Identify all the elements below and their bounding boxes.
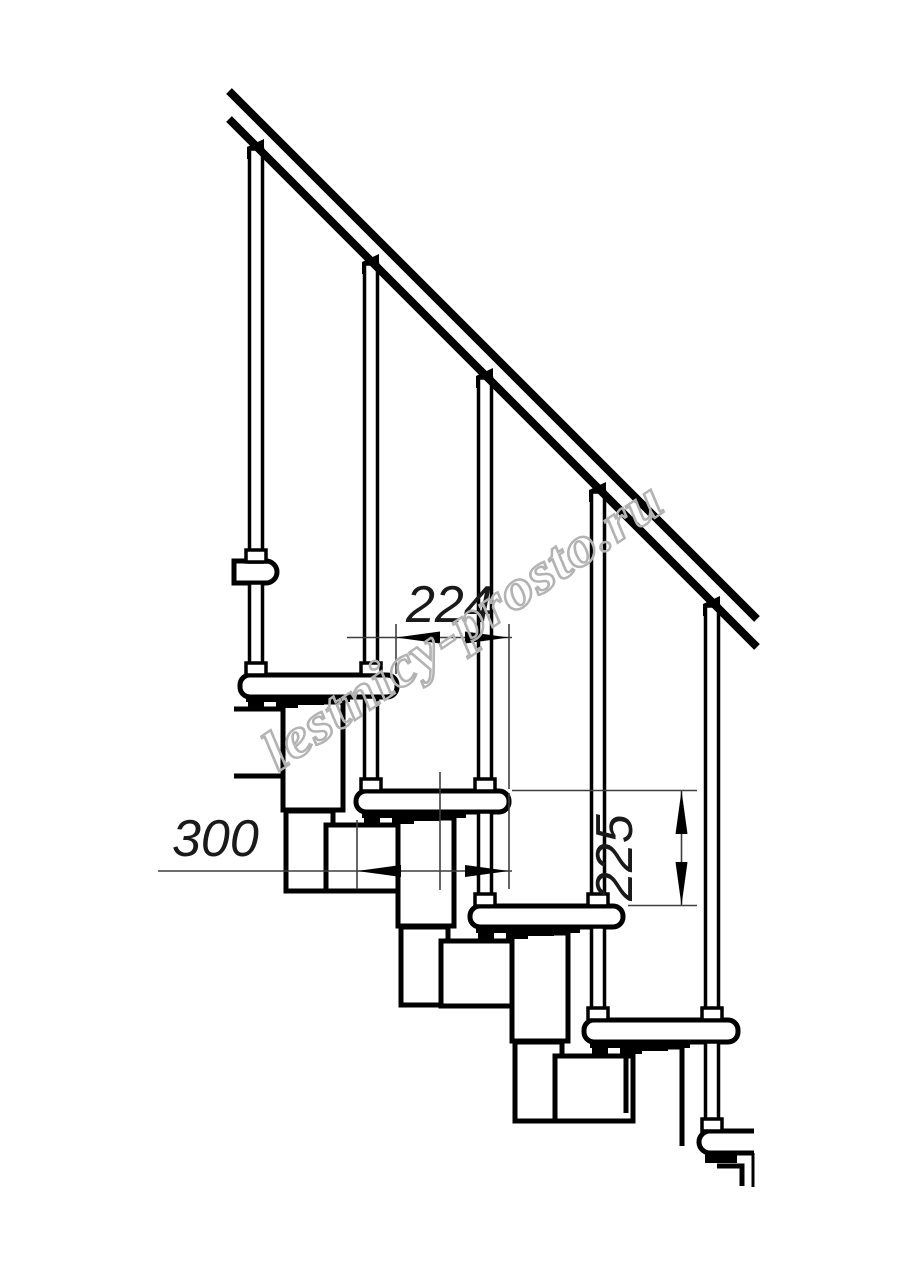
baluster-collar xyxy=(475,894,495,906)
cut-outline xyxy=(717,1166,742,1186)
module-box xyxy=(441,941,518,1006)
tread-bracket xyxy=(506,930,528,939)
tread-5-partial xyxy=(699,1131,754,1153)
tread-bracket xyxy=(478,926,494,939)
baluster-segment xyxy=(365,264,378,675)
staircase-technical-drawing: 224 300 225 lestnicy-prosto.ru xyxy=(0,0,914,1280)
baluster-collar xyxy=(702,1008,722,1020)
baluster-segment xyxy=(250,149,263,562)
baluster-segment xyxy=(706,606,719,1020)
baluster-collar xyxy=(702,1119,722,1131)
tread-bracket xyxy=(392,815,414,824)
tread-bracket xyxy=(528,926,554,936)
baluster-segment xyxy=(479,812,492,906)
dim-depth-label: 300 xyxy=(172,810,259,868)
tread-bracket xyxy=(705,1152,737,1163)
module-box xyxy=(512,933,568,1041)
baluster-collar xyxy=(475,779,495,791)
baluster-collar xyxy=(246,550,266,562)
tread-bracket xyxy=(414,811,440,821)
tread-corner-end xyxy=(234,561,277,583)
baluster-collar xyxy=(588,1008,608,1020)
arrowhead-down xyxy=(676,862,688,906)
tread-4 xyxy=(584,1020,738,1042)
tread-2 xyxy=(356,791,509,812)
tread-3 xyxy=(470,906,623,927)
module-box xyxy=(326,825,403,891)
tread-bracket xyxy=(642,1041,668,1051)
tread-bracket xyxy=(592,1041,608,1054)
module-box xyxy=(555,1056,633,1121)
watermark-text: lestnicy-prosto.ru xyxy=(251,469,675,783)
baluster-segment xyxy=(250,583,263,675)
dim-rise-label: 225 xyxy=(586,813,644,902)
tread-bracket xyxy=(364,811,380,824)
baluster-1 xyxy=(246,149,266,675)
arrowhead-up xyxy=(676,791,688,835)
baluster-5 xyxy=(702,606,722,1131)
baluster-collar xyxy=(246,663,266,675)
baluster-segment xyxy=(592,927,605,1020)
tread-bracket xyxy=(620,1045,642,1054)
staircase-drawing-page: 224 300 225 lestnicy-prosto.ru xyxy=(0,0,914,1280)
baluster-collar xyxy=(361,779,381,791)
tread-bracket xyxy=(248,695,264,708)
module-box xyxy=(398,818,454,926)
